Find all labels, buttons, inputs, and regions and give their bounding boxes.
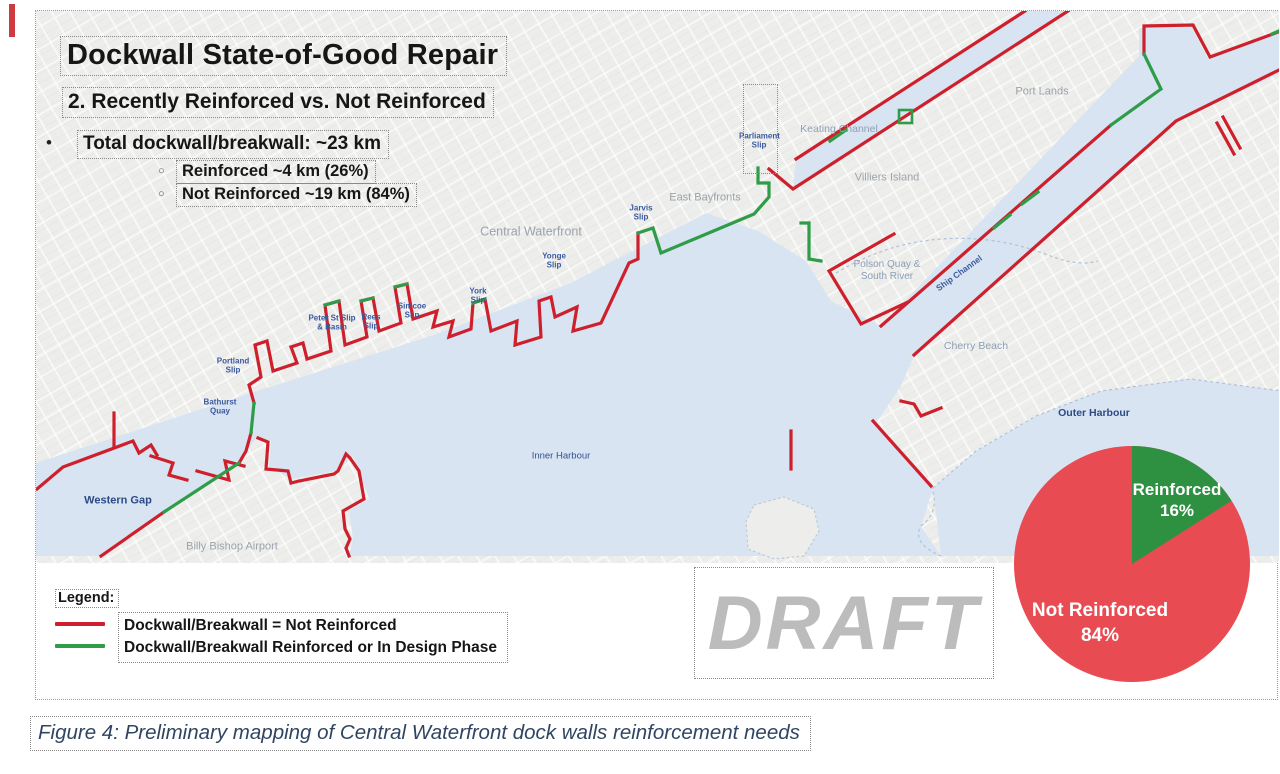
reinforcement-pie-chart: Reinforced 16% Not Reinforced 84% [1008,440,1280,692]
map-label-yonge-slip: Yonge Slip [539,252,569,271]
parliament-slip-box [743,84,778,174]
bullet-marker: • [46,133,52,153]
map-label-billy-bishop: Billy Bishop Airport [186,541,278,554]
map-label-port-lands: Port Lands [1015,86,1068,99]
map-label-rees-slip: Rees Slip [358,313,384,332]
map-label-western-gap: Western Gap [84,495,152,508]
legend-labels: Dockwall/Breakwall = Not Reinforced Dock… [118,612,508,663]
legend: Legend: Dockwall/Breakwall = Not Reinfor… [55,589,508,663]
total-dockwall-stat: Total dockwall/breakwall: ~23 km [77,130,389,159]
map-label-central-waterfront: Central Waterfront [480,225,582,240]
draft-watermark: DRAFT [694,567,994,679]
sub-bullet-marker-2: ○ [158,188,165,200]
legend-swatch-not-reinforced [55,622,105,626]
figure-caption: Figure 4: Preliminary mapping of Central… [30,716,811,751]
map-label-keating-channel: Keating Channel [800,123,878,135]
map-label-peter-st-slip: Peter St Slip & Basin [305,314,359,333]
sub-bullet-marker-1: ○ [158,165,165,177]
map-label-cherry-beach: Cherry Beach [944,340,1008,352]
page-subtitle: 2. Recently Reinforced vs. Not Reinforce… [62,87,494,118]
pie-label-not-reinforced: Not Reinforced [1032,600,1168,621]
page-title: Dockwall State-of-Good Repair [60,36,507,76]
legend-swatch-reinforced [55,644,105,648]
map-label-east-bayfronts: East Bayfronts [669,192,741,205]
legend-heading: Legend: [55,589,119,608]
map-label-york-slip: York Slip [464,287,492,306]
legend-swatches [55,612,105,663]
pie-label-reinforced: Reinforced [1133,480,1222,499]
reinforced-stat: Reinforced ~4 km (26%) [176,160,376,184]
not-reinforced-stat: Not Reinforced ~19 km (84%) [176,183,417,207]
map-label-simcoe-slip: Simcoe Slip [394,302,430,321]
pie-value-reinforced: 16% [1160,501,1194,520]
map-label-jarvis-slip: Jarvis Slip [626,204,656,223]
map-label-inner-harbour: Inner Harbour [532,450,591,461]
map-label-portland-slip: Portland Slip [211,357,255,376]
legend-label-not-reinforced: Dockwall/Breakwall = Not Reinforced [124,615,497,637]
pie-value-not-reinforced: 84% [1081,625,1119,646]
legend-label-reinforced: Dockwall/Breakwall Reinforced or In Desi… [124,637,497,659]
map-label-parliament-slip: Parliament Slip [739,132,779,151]
map-label-polson-quay: Polson Quay & South River [841,259,933,283]
map-label-bathurst-quay: Bathurst Quay [199,398,241,417]
page-edge-marker [9,4,15,37]
map-label-outer-harbour: Outer Harbour [1058,407,1130,419]
map-label-villiers-island: Villiers Island [855,172,920,185]
